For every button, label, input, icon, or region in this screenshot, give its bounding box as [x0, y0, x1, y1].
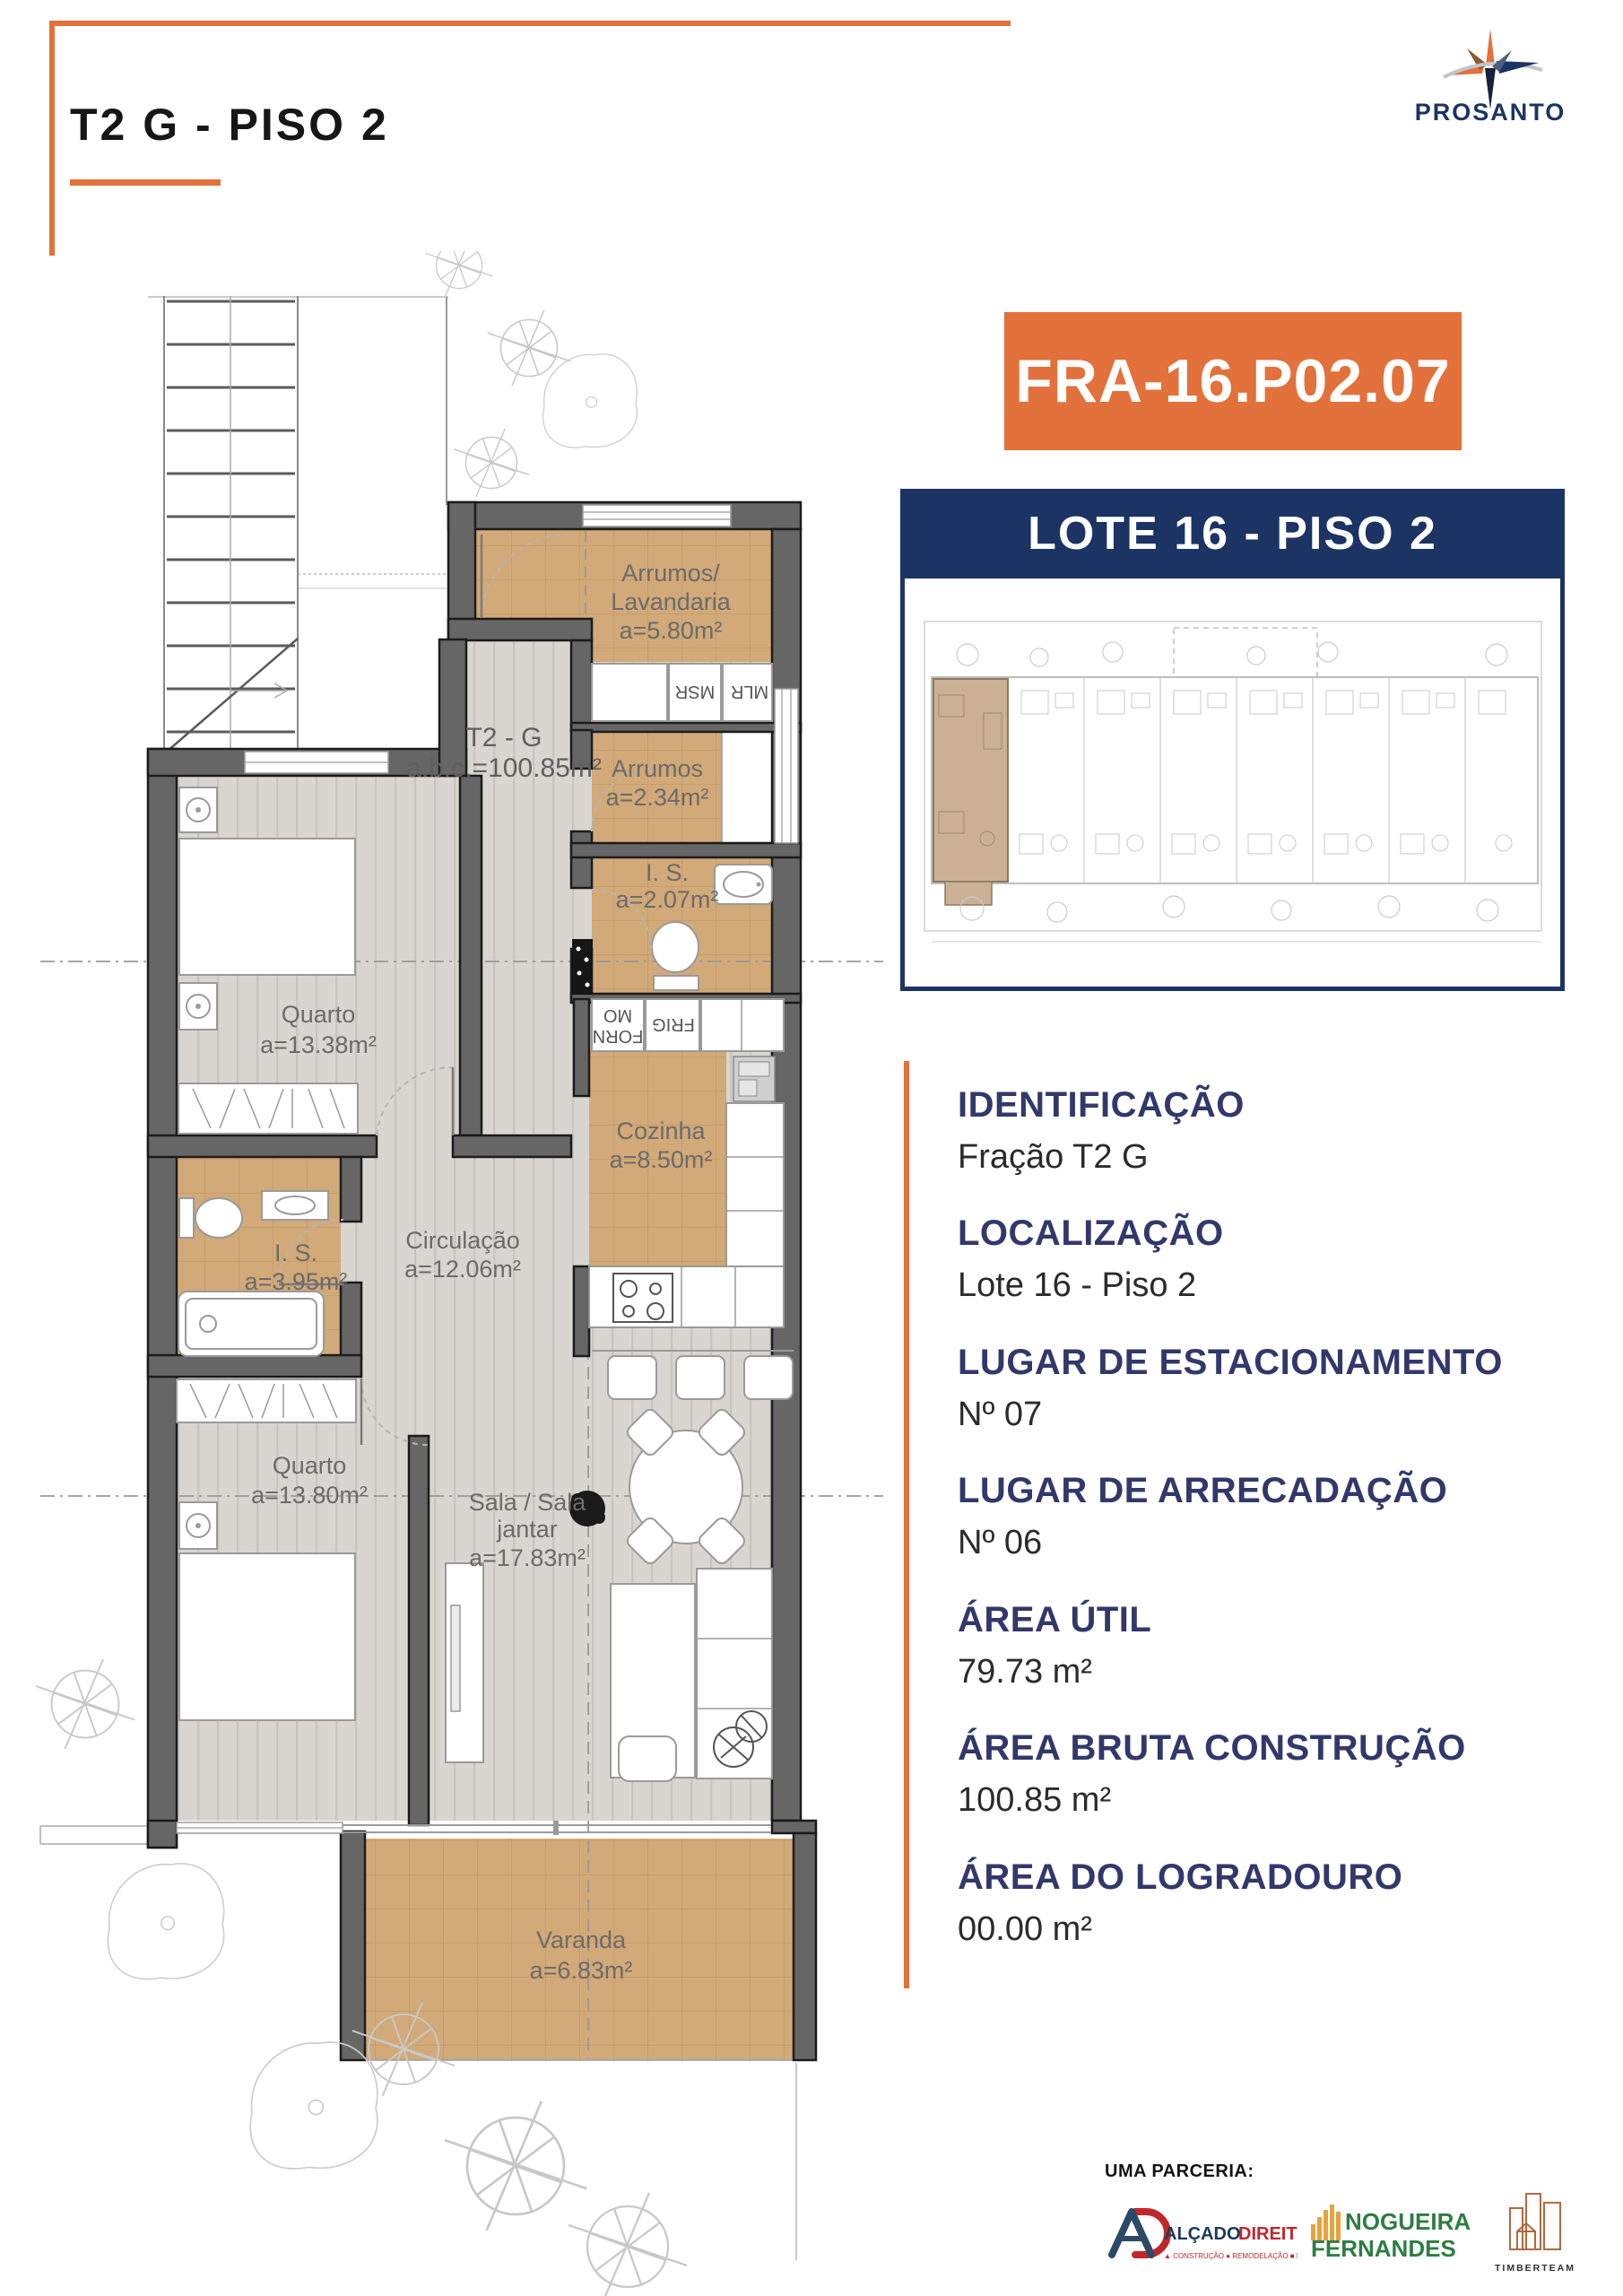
detail-value: Nº 06 [958, 1524, 1541, 1562]
detail-heading: ÁREA BRUTA CONSTRUÇÃO [958, 1728, 1541, 1769]
room-label-laundry: Arrumos/ [621, 560, 720, 587]
detail-heading: LUGAR DE ESTACIONAMENTO [958, 1343, 1541, 1383]
partner-tagline: ▲ CONSTRUÇÃO ● REMODELAÇÃO ■ REABILITAÇÃ… [1164, 2252, 1298, 2260]
brochure-page: T2 G - PISO 2 PROSANTO FRA-16.P02.07 LOT… [0, 0, 1623, 2296]
detail-heading: LUGAR DE ARRECADAÇÃO [958, 1471, 1541, 1511]
room-label-storage: Arrumos [612, 755, 703, 782]
unit-area-label: a.b.c.=100.85m² [406, 753, 602, 783]
room-area-bedroom1: a=13.38m² [260, 1031, 377, 1058]
room-label-bedroom2: Quarto [273, 1452, 347, 1479]
detail-logradouro: ÁREA DO LOGRADOURO 00.00 m² [958, 1857, 1541, 1949]
appliance-label-forn: FORN [593, 1026, 644, 1046]
page-title: T2 G - PISO 2 [70, 99, 389, 151]
room-area-wc1: a=2.07m² [616, 886, 719, 913]
room-area-laundry: a=5.80m² [620, 617, 723, 644]
room-label-laundry: Lavandaria [611, 588, 732, 615]
room-label-living: Sala / Sala [469, 1489, 587, 1516]
room-label-balcony: Varanda [536, 1926, 627, 1953]
room-area-bedroom2: a=13.80m² [251, 1482, 368, 1509]
detail-value: Lote 16 - Piso 2 [958, 1266, 1541, 1305]
room-label-bedroom1: Quarto [282, 1001, 356, 1028]
sliding-door [343, 1821, 771, 1835]
room-area-balcony: a=6.83m² [530, 1957, 633, 1984]
room-area-storage: a=2.34m² [606, 784, 709, 811]
detail-heading: LOCALIZAÇÃO [958, 1213, 1541, 1254]
partnership-label: UMA PARCERIA: [1105, 2161, 1254, 2182]
detail-area-bruta: ÁREA BRUTA CONSTRUÇÃO 100.85 m² [958, 1728, 1541, 1820]
unit-label: T2 - G [465, 723, 542, 752]
appliance-label-mo: MO [603, 1005, 632, 1025]
room-area-living: a=17.83m² [469, 1544, 586, 1571]
title-underline [70, 179, 221, 186]
partner-name-fernandes: FERNANDES [1311, 2235, 1456, 2262]
appliance-label-frig: FRIG [652, 1014, 695, 1034]
lote-banner: LOTE 16 - PISO 2 [900, 489, 1565, 578]
staircase [164, 296, 298, 777]
appliance-label-mlr: MLR [731, 682, 768, 701]
mini-plan-drawing [905, 578, 1560, 987]
detail-value: Fração T2 G [958, 1138, 1541, 1177]
highlighted-unit [933, 679, 1008, 905]
detail-value: 00.00 m² [958, 1910, 1541, 1949]
corner-bracket-side [49, 21, 55, 256]
floor-plan: Arrumos/ Lavandaria a=5.80m² T2 - G a.b.… [0, 251, 906, 2296]
room-area-wc2: a=3.95m² [245, 1268, 348, 1295]
compass-star-icon [1444, 29, 1542, 109]
room-label-living: jantar [496, 1516, 558, 1543]
detail-arrecadacao: LUGAR DE ARRECADAÇÃO Nº 06 [958, 1471, 1541, 1562]
room-label-wc1: I. S. [646, 859, 689, 886]
timber-buildings-icon [1510, 2194, 1560, 2249]
detail-localizacao: LOCALIZAÇÃO Lote 16 - Piso 2 [958, 1213, 1541, 1305]
partner-name-nogueira: NOGUEIRA [1345, 2208, 1471, 2235]
detail-value: 79.73 m² [958, 1653, 1541, 1692]
timberteam-logo: TIMBERTEAM [1490, 2188, 1580, 2278]
detail-estacionamento: LUGAR DE ESTACIONAMENTO Nº 07 [958, 1343, 1541, 1434]
detail-value: Nº 07 [958, 1396, 1541, 1434]
detail-identificacao: IDENTIFICAÇÃO Fração T2 G [958, 1085, 1541, 1177]
detail-area-util: ÁREA ÚTIL 79.73 m² [958, 1600, 1541, 1692]
room-label-kitchen: Cozinha [616, 1118, 706, 1144]
nogueira-fernandes-logo: NOGUEIRA FERNANDES [1309, 2199, 1471, 2280]
detail-heading: ÁREA ÚTIL [958, 1600, 1541, 1640]
building-overview-plan [900, 578, 1565, 991]
room-area-hallway: a=12.06m² [404, 1256, 521, 1283]
prosanto-logo-text: PROSANTO [1415, 99, 1567, 126]
partner-name-alcado: ALÇADO [1164, 2224, 1241, 2244]
room-label-wc2: I. S. [274, 1239, 317, 1266]
room-area-kitchen: a=8.50m² [610, 1146, 713, 1173]
ad-monogram-icon [1112, 2212, 1167, 2255]
corner-bracket-top [49, 21, 1011, 26]
fraction-code: FRA-16.P02.07 [1015, 346, 1450, 416]
lote-banner-label: LOTE 16 - PISO 2 [1028, 507, 1437, 561]
room-label-hallway: Circulação [405, 1227, 520, 1254]
shaft [572, 939, 593, 995]
fraction-code-badge: FRA-16.P02.07 [1004, 312, 1462, 450]
detail-heading: ÁREA DO LOGRADOURO [958, 1857, 1541, 1898]
partner-name-timberteam: TIMBERTEAM [1495, 2263, 1575, 2274]
appliance-label-msr: MSR [675, 682, 715, 701]
partner-name-direito: DIREITO [1238, 2224, 1298, 2244]
prosanto-logo: PROSANTO [1381, 27, 1587, 126]
alcado-direito-logo: ALÇADO DIREITO ▲ CONSTRUÇÃO ● REMODELAÇÃ… [1105, 2199, 1298, 2275]
detail-heading: IDENTIFICAÇÃO [958, 1085, 1541, 1126]
detail-value: 100.85 m² [958, 1781, 1541, 1820]
